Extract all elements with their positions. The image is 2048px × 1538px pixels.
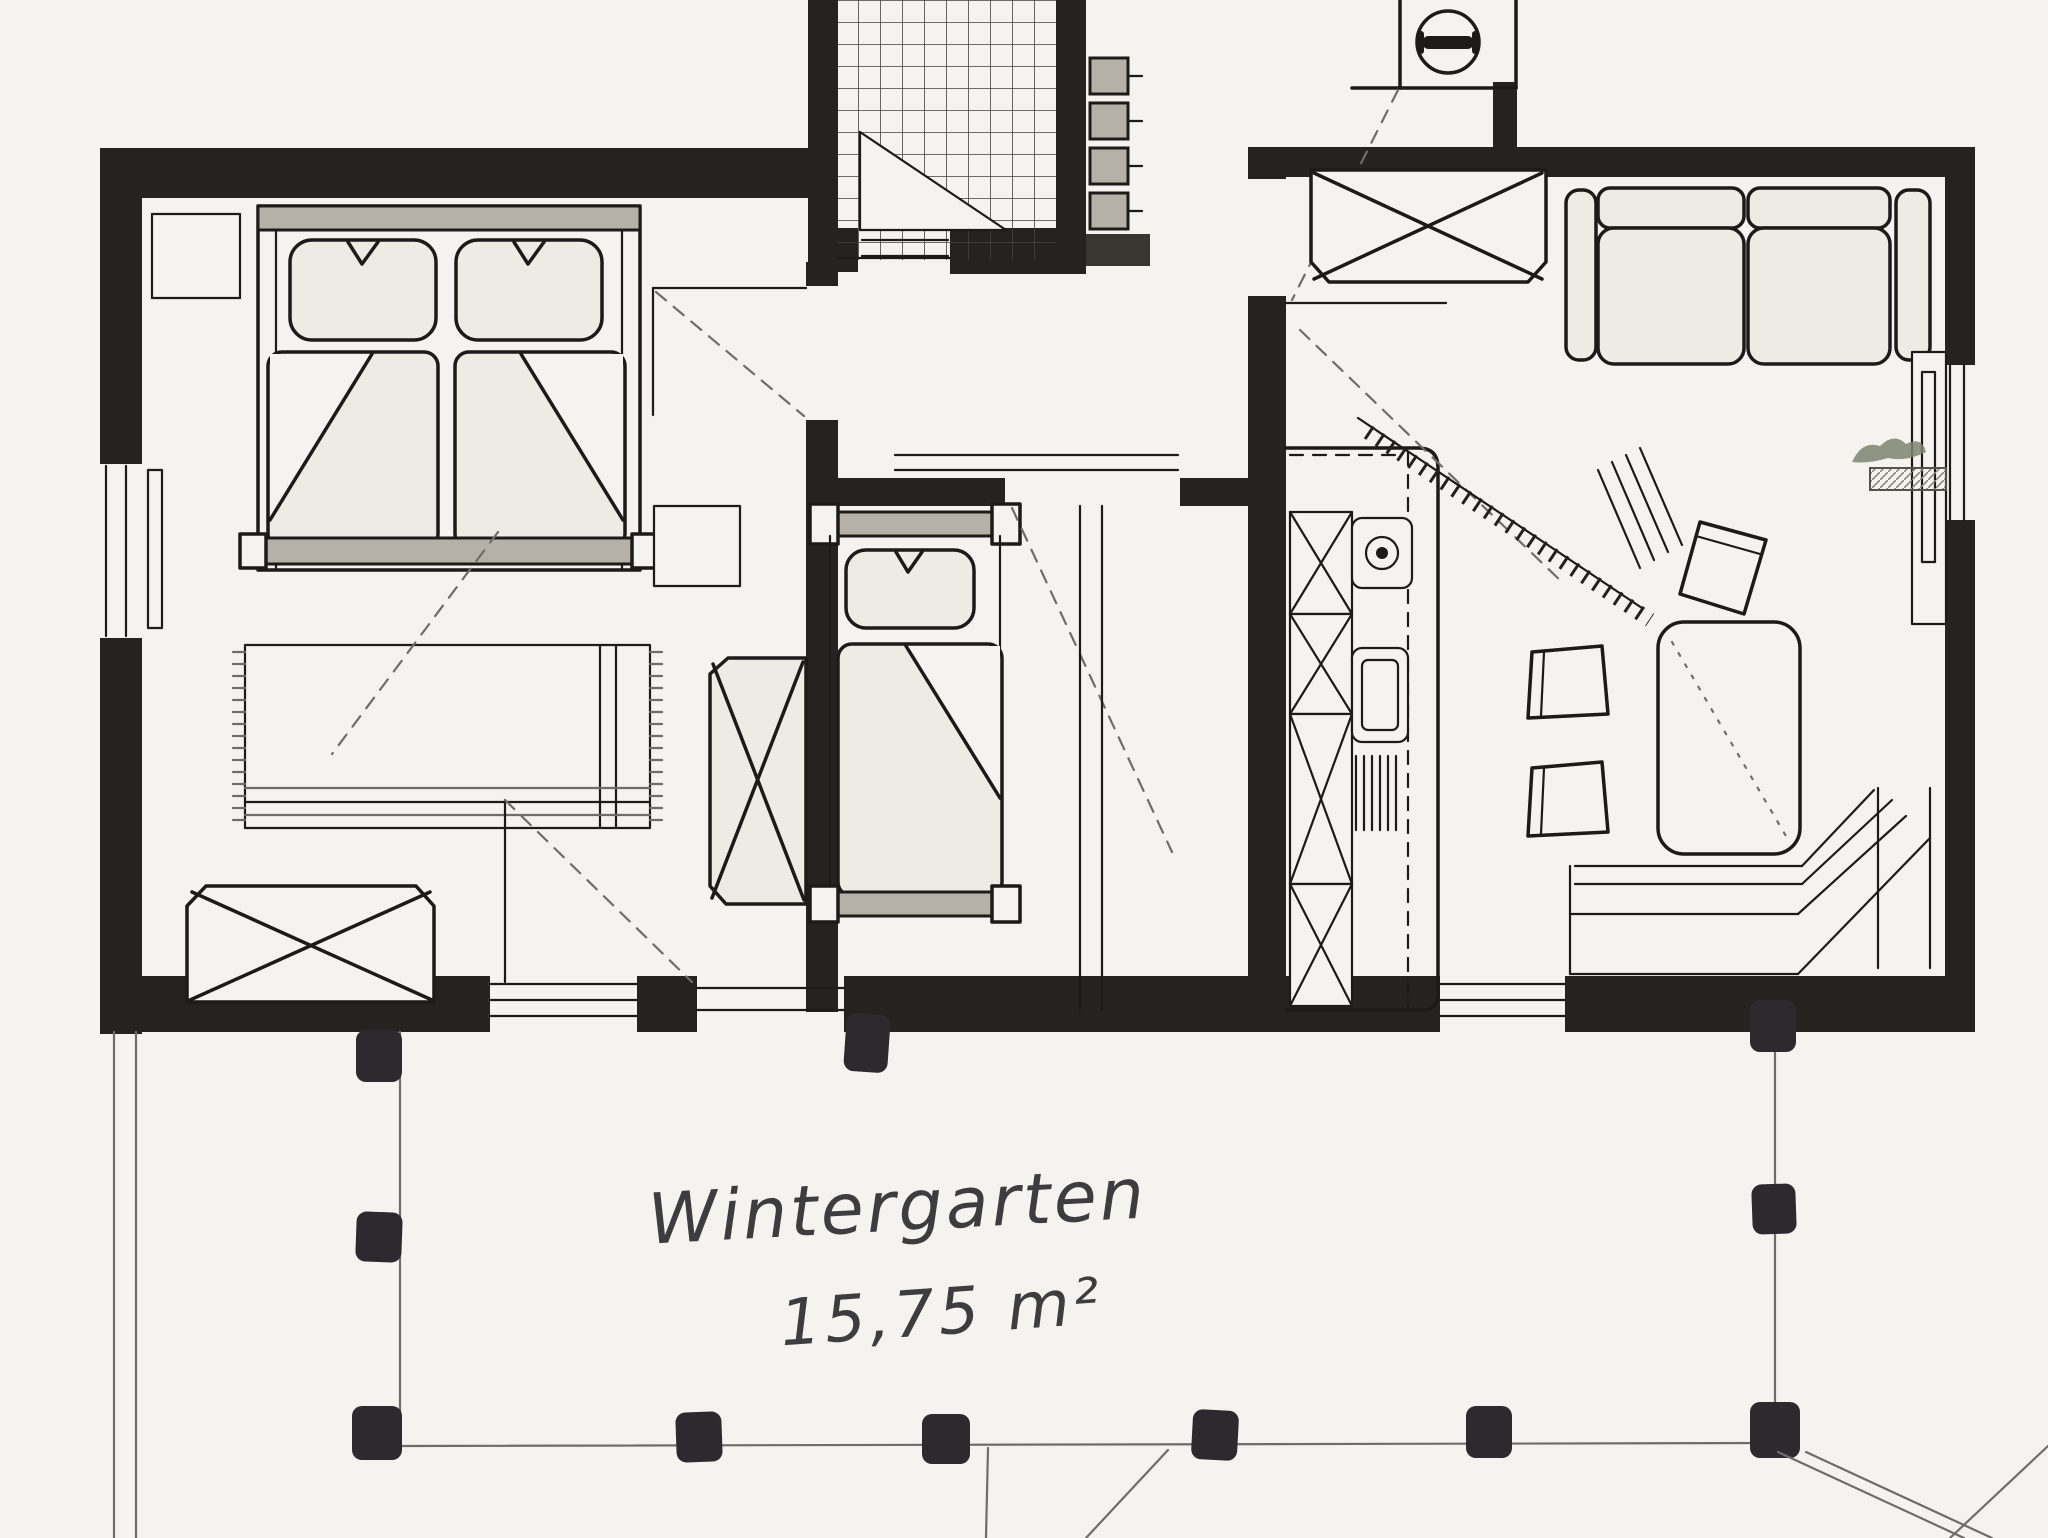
- stove-icon: [1352, 648, 1408, 742]
- nightstand-icon: [152, 214, 240, 298]
- cabinet-x-icon: [1290, 512, 1352, 1006]
- floor-plan-page: Wintergarten 15,75 m²: [0, 0, 2048, 1538]
- rug-icon: [233, 645, 662, 828]
- stool-icon: [654, 506, 740, 586]
- sofa-icon: [1566, 188, 1930, 364]
- chair-icon-2: [1528, 762, 1608, 836]
- corridor-step: [895, 455, 1178, 470]
- window-icon-living-bottom: [1440, 984, 1565, 1016]
- door-swing-icon-bedroom: [653, 288, 806, 416]
- wardrobe-x-icon-bedroom: [710, 658, 806, 904]
- window-icon-right-wall: [1943, 365, 1977, 520]
- chair-icon-1: [1528, 646, 1608, 718]
- wintergarten-label: Wintergarten: [646, 1153, 1149, 1261]
- kitchen-counter-icon: [1286, 448, 1438, 1010]
- chest-x-icon: [187, 886, 434, 1002]
- floor-plan-drawing: Wintergarten 15,75 m²: [0, 0, 2048, 1538]
- wintergarten-area-label: 15,75 m²: [778, 1265, 1106, 1361]
- grill-icon: [1356, 756, 1396, 830]
- window-icon-bedroom-bottom: [490, 984, 637, 1016]
- pillow-icon: [846, 550, 974, 628]
- door-swing-icon-middle-room: [1012, 506, 1172, 1010]
- pillow-icon: [290, 240, 602, 340]
- double-bed-icon: [240, 206, 658, 570]
- radiator-fins-icon: [1090, 58, 1142, 229]
- dining-table-icon: [1658, 622, 1800, 854]
- wardrobe-x-icon-living: [1311, 170, 1546, 282]
- sink-icon: [1352, 518, 1412, 588]
- duvet-icon: [268, 352, 625, 548]
- chair-icon-3: [1680, 522, 1766, 614]
- single-bed-icon: [810, 504, 1020, 922]
- window-icon-left-wall: [98, 464, 162, 638]
- duvet-icon: [838, 644, 1002, 896]
- garden-path-lines: [986, 1446, 2048, 1538]
